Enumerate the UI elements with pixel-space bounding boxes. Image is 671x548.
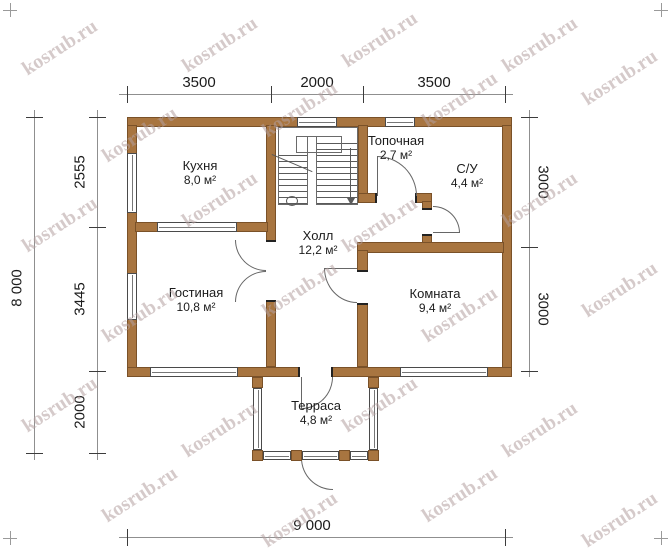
door-arc-bathroom (433, 206, 460, 233)
watermark-text: kosrub.ru (578, 487, 662, 548)
door-leaf-boiler (377, 156, 378, 196)
dim-label-right-2: 3000 (535, 279, 552, 339)
terrace-rail-bottom-middle (302, 451, 339, 460)
floor-plan: Кухня 8,0 м² Топочная 2,7 м² С/У 4,4 м² … (0, 0, 671, 548)
watermark-text: kosrub.ru (498, 397, 582, 463)
window-room-bottom (400, 367, 488, 377)
watermark-text: kosrub.ru (578, 257, 662, 323)
room-area: 9,4 м² (387, 301, 483, 315)
terrace-post (252, 377, 263, 388)
watermark-text: kosrub.ru (578, 45, 662, 111)
wall-room-left (357, 250, 368, 367)
room-area: 4,4 м² (419, 176, 515, 190)
corner-mark (654, 3, 668, 17)
corner-mark (3, 3, 17, 17)
room-name: Терраса (268, 398, 364, 413)
terrace-rail-right (369, 388, 378, 450)
dim-label-left-2: 3445 (72, 269, 89, 329)
corner-mark (3, 531, 17, 545)
terrace-rail-left (253, 388, 262, 450)
room-name: Гостиная (148, 285, 244, 300)
staircase-landing (296, 136, 342, 153)
room-area: 2,7 м² (348, 148, 444, 162)
door-arc-terrace-exit (301, 458, 333, 490)
room-area: 10,8 м² (148, 300, 244, 314)
dim-tick (26, 117, 43, 118)
dim-line-right (529, 110, 530, 377)
window-kitchen-left (127, 153, 137, 213)
door-arc-boiler (377, 156, 417, 196)
door-arc-living-upper (235, 240, 266, 271)
window-boiler-top (385, 117, 415, 127)
terrace-post (252, 450, 263, 461)
door-leaf-bathroom (433, 232, 460, 233)
door-opening-bathroom (422, 208, 432, 236)
room-name: Кухня (152, 158, 248, 173)
watermark-text: kosrub.ru (498, 12, 582, 78)
dim-label-right-1: 3000 (535, 152, 552, 212)
dim-tick (521, 247, 538, 248)
dim-tick (89, 453, 106, 454)
room-label-bathroom: С/У 4,4 м² (419, 161, 515, 190)
staircase-arrow-head (347, 198, 355, 205)
watermark-text: kosrub.ru (98, 462, 182, 528)
corner-mark (654, 531, 668, 545)
dim-tick (505, 529, 506, 546)
terrace-post (339, 450, 350, 461)
room-label-kitchen: Кухня 8,0 м² (152, 158, 248, 187)
room-area: 8,0 м² (152, 173, 248, 187)
room-label-room: Комната 9,4 м² (387, 286, 483, 315)
terrace-post (368, 450, 379, 461)
door-opening-terrace (298, 367, 333, 377)
dim-tick (505, 86, 506, 103)
room-label-terrace: Терраса 4,8 м² (268, 398, 364, 427)
dim-tick (521, 371, 538, 372)
room-area: 12,2 м² (270, 243, 366, 257)
watermark-text: kosrub.ru (18, 15, 102, 81)
terrace-rail-bottom-left (263, 451, 291, 460)
door-arc-room (324, 268, 357, 303)
room-label-living: Гостиная 10,8 м² (148, 285, 244, 314)
room-name: Комната (387, 286, 483, 301)
dim-tick (271, 86, 272, 103)
dim-label-left-outer: 8 000 (9, 258, 26, 318)
dim-line-left-outer (34, 110, 35, 460)
watermark-text: kosrub.ru (18, 372, 102, 438)
watermark-text: kosrub.ru (418, 462, 502, 528)
dim-line-bottom (119, 537, 513, 538)
dim-tick (127, 86, 128, 103)
watermark-text: kosrub.ru (178, 397, 262, 463)
window-living-bottom (150, 367, 238, 377)
door-leaf-room (324, 268, 357, 269)
room-area: 4,8 м² (268, 413, 364, 427)
dim-line-left-inner (97, 110, 98, 460)
watermark-text: kosrub.ru (178, 12, 262, 78)
dim-label-bottom: 9 000 (282, 517, 342, 534)
dim-label-left-1: 2555 (72, 142, 89, 202)
dim-tick (363, 86, 364, 103)
window-living-left (127, 273, 137, 320)
room-label-hall: Холл 12,2 м² (270, 228, 366, 257)
window-stairs-top (297, 117, 337, 127)
dim-label-left-3: 2000 (72, 382, 89, 442)
dim-label-top-1: 3500 (169, 74, 229, 91)
door-opening-room (357, 270, 368, 305)
terrace-post (368, 377, 379, 388)
dim-tick (521, 117, 538, 118)
watermark-text: kosrub.ru (18, 192, 102, 258)
staircase-start-circle (286, 196, 298, 206)
dim-tick (89, 227, 106, 228)
dim-label-top-3: 3500 (404, 74, 464, 91)
dim-tick (89, 117, 106, 118)
dim-label-top-2: 2000 (287, 74, 347, 91)
terrace-rail-bottom-right (350, 451, 368, 460)
dim-line-top (119, 94, 513, 95)
watermark-text: kosrub.ru (338, 7, 422, 73)
room-name: С/У (419, 161, 515, 176)
dim-tick (26, 453, 43, 454)
wall-room-top (357, 242, 504, 253)
terrace-post (291, 450, 302, 461)
room-name: Топочная (348, 133, 444, 148)
opening-kitchen-living (157, 222, 237, 232)
dim-tick (89, 371, 106, 372)
room-name: Холл (270, 228, 366, 243)
room-label-boiler: Топочная 2,7 м² (348, 133, 444, 162)
dim-tick (127, 529, 128, 546)
